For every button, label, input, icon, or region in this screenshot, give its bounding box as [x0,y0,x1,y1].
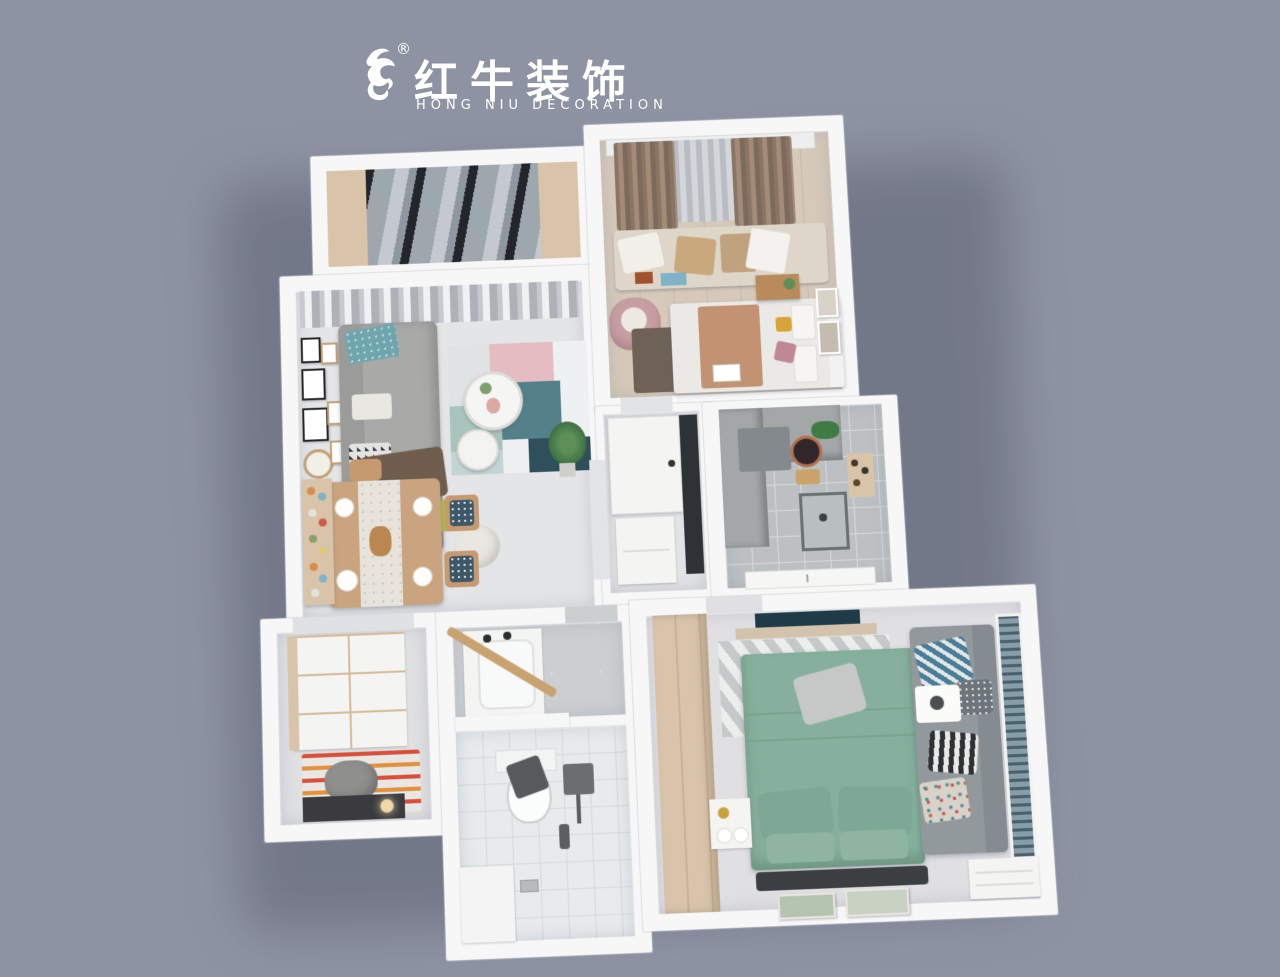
dining-chair [444,550,479,587]
drawer-line [976,882,1033,886]
dish [311,589,319,597]
bed-pillow [791,304,817,340]
spice-jar [851,459,858,466]
shoe-cabinet [291,632,407,751]
dot-pillow [957,679,994,715]
plate [336,569,359,592]
table-decor [486,398,500,414]
yellow-pillow [775,317,792,332]
tray-cup [929,695,944,710]
plant-pot [559,463,576,477]
pink-pillow [774,341,797,364]
drawer-line [975,870,1032,874]
spice-shelf [847,453,875,498]
book [635,272,653,284]
white-pillow [617,232,665,275]
dish [318,546,326,554]
floor-lamp [380,799,394,813]
brand-logo: ® 红牛装饰 HONG NIU DECORATION [352,40,652,120]
spice-jar [853,479,860,486]
gold-lamp [718,807,730,819]
brown-curtain-right [731,136,796,226]
wall-art-frame [301,368,326,400]
dish [319,574,327,582]
apartment-floorplan [194,95,1077,977]
green-pillow-small [766,832,835,864]
floor-art-frame [777,892,836,919]
balcony-glass-roof [366,163,542,266]
nightstand [755,274,800,301]
paper-roll [717,828,733,844]
master-door-opening [706,595,763,613]
bed-pillow [793,345,819,383]
entry-mirror-niche [303,793,406,822]
paper-roll [733,827,749,843]
dish [307,487,315,495]
white-pillow [352,393,392,420]
master-bed [741,648,926,871]
cutting-board [795,469,820,485]
master-nightstand [709,798,752,849]
green-pillow [838,786,912,835]
sheer-curtain [672,138,737,222]
gray-pillow [792,662,868,726]
shower-curb [460,866,516,944]
wall-art-frame [302,407,329,441]
wall-art-frame [817,321,841,355]
nightstand-plant [783,278,795,290]
floor-art-frame [845,887,910,917]
chair-cushion [449,555,474,582]
vegetables [811,421,840,440]
floor-plant [544,421,590,480]
magazine-on-bed [712,364,741,383]
faucet [819,513,827,521]
dining-chair [444,494,479,531]
bathroom-opening [565,605,618,623]
floor-drain [520,879,539,892]
wall-art-frame [301,337,321,363]
kitchen-sink [799,492,850,552]
wall-art-frame [815,288,838,318]
white-pillow [745,228,790,274]
dish [308,509,316,517]
dining-chair [349,459,382,482]
sideboard [302,478,335,605]
zigzag-pillow [928,730,979,775]
magazine [661,272,687,286]
plate [412,566,433,587]
duvet-fold [745,733,918,742]
centerpiece [369,526,392,557]
wall-art-frame [321,342,338,364]
spice-jar [861,467,868,474]
shower-head [563,763,595,795]
chair-cushion [449,500,474,527]
dish [319,518,327,526]
door-track [806,574,808,582]
green-pillow-small [840,829,909,861]
balcony-wood-deck-left [326,170,368,267]
floorplan-render-scene: ® 红牛装饰 HONG NIU DECORATION [0,0,1280,960]
door-handle [668,460,675,467]
window-sofa [909,624,1009,855]
hand-shower [559,824,570,849]
dining-table [328,478,444,608]
bathroom-door [607,415,683,515]
plate [412,496,433,517]
dish [310,563,318,571]
dish [309,535,317,543]
hall-cabinet [616,516,677,584]
cabinet-line [623,549,669,553]
dish [318,492,326,500]
plate [334,497,355,518]
tan-pillow [674,235,717,275]
brown-curtain-left [613,141,678,231]
plant-leaves [548,421,588,466]
balcony-wood-deck-right [538,161,581,258]
triangle-print-pillow [919,776,972,824]
sofa-tray [915,685,962,724]
kitchen-appliance [737,427,791,473]
master-dresser [968,857,1040,899]
registered-mark: ® [396,40,411,58]
table-plant [480,382,492,394]
